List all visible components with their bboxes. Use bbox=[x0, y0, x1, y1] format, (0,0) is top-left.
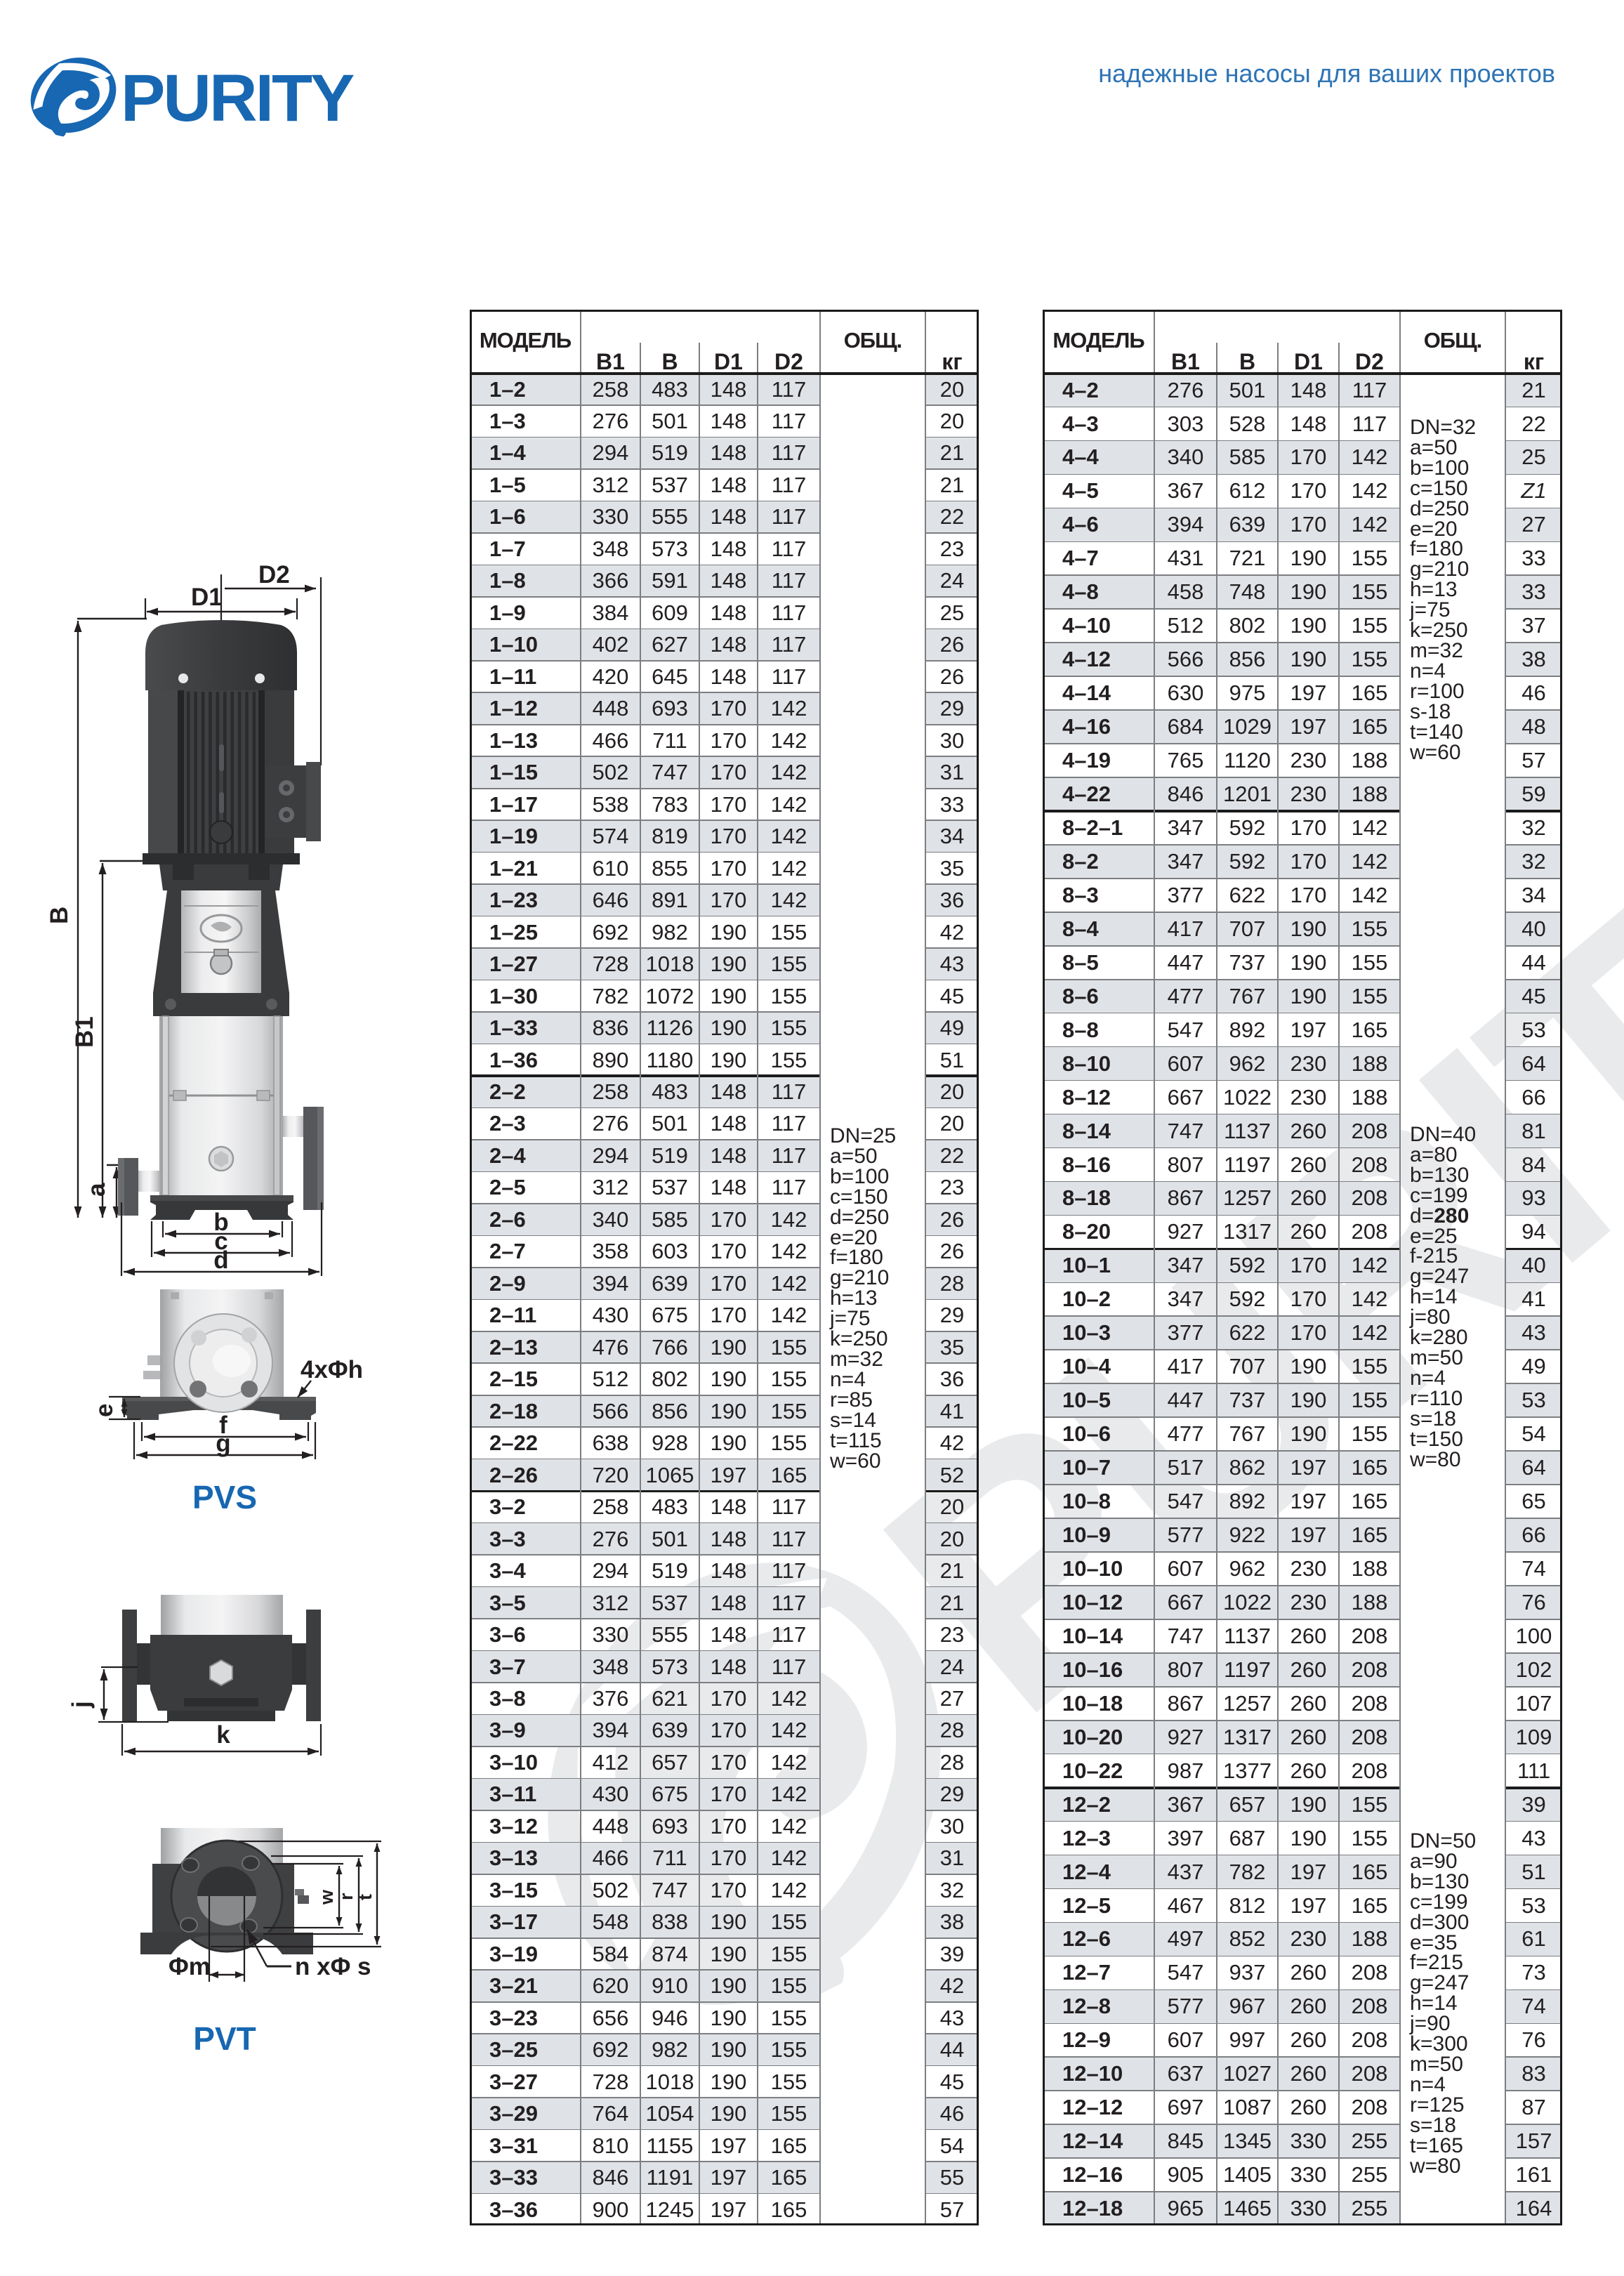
svg-text:w: w bbox=[316, 1889, 337, 1905]
svg-text:n xΦ s: n xΦ s bbox=[295, 1953, 371, 1980]
svg-text:r: r bbox=[336, 1893, 357, 1900]
svg-text:Φm: Φm bbox=[169, 1953, 211, 1980]
svg-text:t: t bbox=[355, 1894, 376, 1900]
